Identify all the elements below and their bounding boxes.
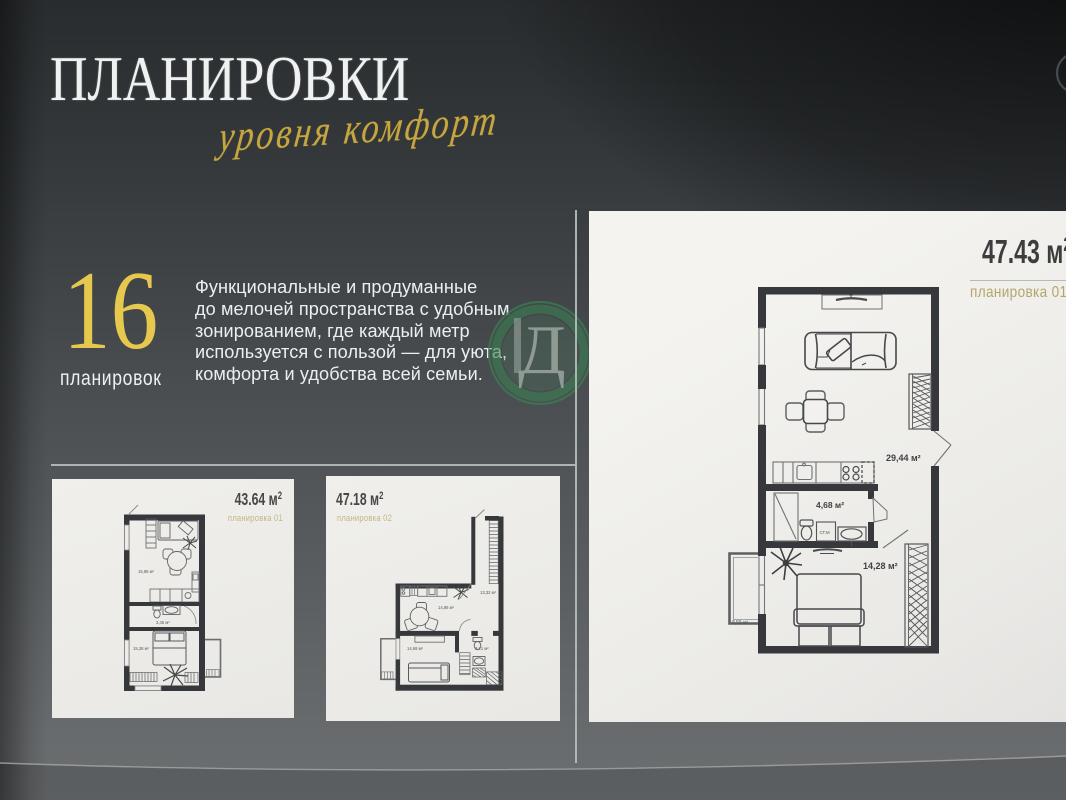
svg-text:3,45 м²: 3,45 м²: [156, 620, 170, 625]
svg-text:14,28 м²: 14,28 м²: [863, 561, 898, 571]
svg-text:15,28 м²: 15,28 м²: [133, 646, 150, 651]
svg-text:3,21 м²: 3,21 м²: [475, 646, 489, 651]
svg-text:14,86 м²: 14,86 м²: [438, 605, 455, 610]
svg-text:8,55 м²: 8,55 м²: [732, 620, 749, 626]
svg-text:СТ.М: СТ.М: [820, 530, 830, 535]
svg-text:14,69 м²: 14,69 м²: [407, 646, 424, 651]
svg-text:Д: Д: [518, 312, 566, 389]
svg-text:29,44 м²: 29,44 м²: [886, 453, 921, 463]
svg-text:4,68 м²: 4,68 м²: [816, 500, 844, 510]
svg-text:13,32 м²: 13,32 м²: [480, 590, 497, 595]
svg-text:15,86 м²: 15,86 м²: [138, 569, 155, 574]
